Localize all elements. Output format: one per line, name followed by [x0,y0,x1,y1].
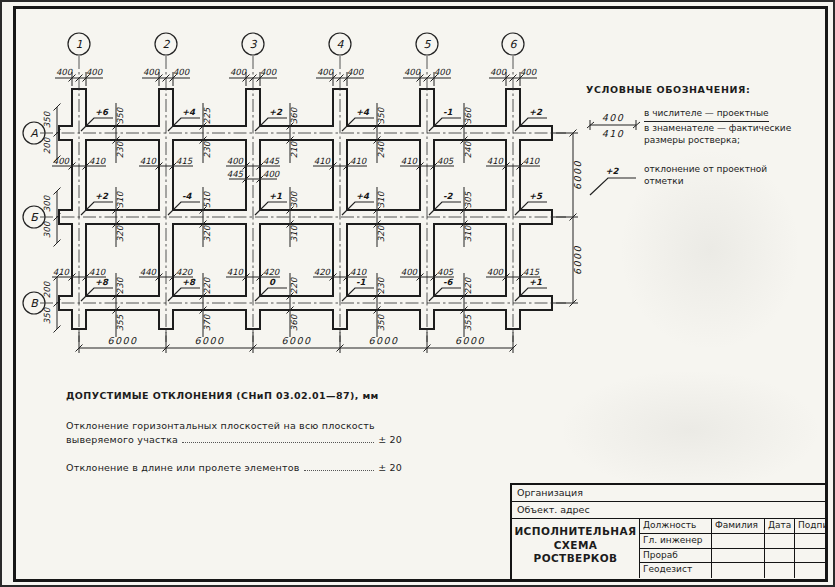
svg-text:В: В [30,297,39,310]
svg-text:-4: -4 [182,191,193,201]
svg-text:440: 440 [140,267,158,277]
svg-text:4: 4 [337,38,345,51]
svg-text:+6: +6 [95,107,109,117]
svg-text:400: 400 [173,67,191,77]
svg-text:-6: -6 [443,277,454,287]
grillage-beams [58,88,553,330]
svg-text:+8: +8 [182,277,196,287]
svg-text:415: 415 [176,156,193,166]
svg-text:+1: +1 [529,277,542,287]
svg-text:6000: 6000 [572,160,583,190]
svg-text:220: 220 [289,276,299,294]
svg-text:6000: 6000 [107,335,137,346]
title-block: Организация Объект. адрес ИСПОЛНИТЕЛЬНАЯ… [510,483,827,581]
note-item: Отклонение в длине или пролете элементов… [66,461,402,475]
svg-text:230: 230 [202,140,212,158]
note-line2: выверяемого участка [66,433,178,447]
svg-text:225: 225 [202,107,212,124]
row-surveyor: Геодезист [640,563,712,578]
organization-row: Организация [512,485,825,502]
svg-text:350: 350 [42,110,52,128]
note-value: ± 20 [378,433,402,447]
svg-text:355: 355 [115,314,125,331]
svg-text:0: 0 [269,277,276,287]
size-fraction-symbol: 400 410 [586,108,644,146]
svg-text:400: 400 [520,67,538,77]
svg-text:5: 5 [424,38,432,51]
bottom-dimensions: 60006000600060006000 [76,332,517,353]
svg-text:-2: -2 [443,191,454,201]
svg-text:-1: -1 [356,277,366,287]
note-item: Отклонение горизонтальных плоскостей на … [66,419,402,447]
row-chief-engineer: Гл. инженер [640,534,712,549]
svg-text:410: 410 [401,156,419,166]
svg-text:300: 300 [289,190,299,208]
deviation-leader-symbol: +2 [586,164,644,202]
svg-text:310: 310 [289,224,299,242]
svg-text:320: 320 [202,224,212,242]
drawing-sheet: 123456АБВ4004004004004004004004004004004… [0,0,835,587]
svg-text:+2: +2 [269,107,283,117]
svg-text:420: 420 [176,267,194,277]
svg-text:410: 410 [53,267,71,277]
svg-text:220: 220 [463,276,473,294]
svg-text:360: 360 [289,106,299,124]
legend-title: УСЛОВНЫЕ ОБОЗНАЧЕНИЯ: [586,84,831,96]
svg-text:355: 355 [463,314,473,331]
legend-deviation-line2: отметки [644,176,684,186]
note-value: ± 20 [378,461,402,475]
legend-size-line1: в числителе — проектные [644,108,769,122]
svg-text:400: 400 [143,67,161,77]
empty-cell [765,563,795,578]
legend-item-deviation: +2 отклонение от проектной отметки [586,164,831,202]
svg-text:400: 400 [227,156,245,166]
svg-text:400: 400 [487,267,505,277]
signature-table: Должность Фамилия Дата Подпись Гл. инжен… [639,519,825,578]
svg-text:220: 220 [202,276,212,294]
svg-text:400: 400 [230,67,248,77]
svg-text:-1: -1 [443,107,453,117]
allowable-deviations-notes: ДОПУСТИМЫЕ ОТКЛОНЕНИЯ (СНиП 03.02.01—87)… [66,390,402,488]
empty-cell [712,534,765,549]
empty-cell [795,534,825,549]
empty-cell [765,534,795,549]
legend-deviation-text: отклонение от проектной отметки [644,164,831,187]
svg-text:405: 405 [437,156,454,166]
legend-size-line3: размеры ростверка; [644,135,740,145]
svg-text:410: 410 [140,156,158,166]
dotted-leader [182,442,374,443]
legend: УСЛОВНЫЕ ОБОЗНАЧЕНИЯ: 400 410 в числител… [586,84,831,220]
note-line2: Отклонение в длине или пролете элементов [66,461,300,475]
svg-text:400: 400 [86,67,104,77]
right-dimensions: 60006000 [553,130,583,307]
svg-text:+4: +4 [356,107,370,117]
svg-text:415: 415 [523,267,540,277]
deviation-sample-value: +2 [605,166,619,176]
dotted-leader [304,470,375,471]
svg-text:+1: +1 [269,191,282,201]
svg-text:200: 200 [42,280,52,298]
empty-cell [795,563,825,578]
svg-text:+2: +2 [95,191,109,201]
svg-text:2: 2 [163,38,171,51]
svg-text:410: 410 [523,156,541,166]
svg-text:400: 400 [263,169,281,179]
col-header-name: Фамилия [712,519,765,534]
drawing-title: ИСПОЛНИТЕЛЬНАЯ СХЕМА РОСТВЕРКОВ [512,519,639,578]
svg-text:350: 350 [115,106,125,124]
svg-text:240: 240 [463,140,473,158]
svg-text:420: 420 [263,267,281,277]
svg-text:3: 3 [250,38,258,51]
svg-text:300: 300 [42,194,52,212]
svg-text:405: 405 [437,267,454,277]
legend-deviation-line1: отклонение от проектной [644,164,767,174]
svg-text:400: 400 [404,67,422,77]
svg-text:6000: 6000 [455,335,485,346]
svg-text:400: 400 [490,67,508,77]
svg-text:+5: +5 [529,191,543,201]
svg-text:410: 410 [314,156,332,166]
svg-text:445: 445 [227,169,244,179]
svg-text:+8: +8 [95,277,109,287]
svg-text:310: 310 [376,190,386,208]
svg-text:410: 410 [89,267,107,277]
svg-text:350: 350 [376,313,386,331]
svg-text:200: 200 [42,136,52,154]
svg-text:410: 410 [350,267,368,277]
svg-text:400: 400 [347,67,365,77]
svg-text:1: 1 [76,38,83,51]
svg-text:310: 310 [463,224,473,242]
legend-item-sizes: 400 410 в числителе — проектные в знамен… [586,108,831,146]
top-dimensions: 400400400400400400400400400400400400 [55,67,538,86]
svg-text:6000: 6000 [572,245,583,275]
svg-text:400: 400 [401,267,419,277]
svg-text:310: 310 [115,190,125,208]
empty-cell [712,563,765,578]
size-top-value: 400 [602,112,625,123]
svg-text:360: 360 [463,106,473,124]
empty-cell [765,549,795,564]
size-bottom-value: 410 [602,128,625,139]
svg-text:350: 350 [376,106,386,124]
note-line1: Отклонение горизонтальных плоскостей на … [66,419,402,433]
svg-text:410: 410 [350,156,368,166]
svg-text:400: 400 [56,67,74,77]
svg-text:410: 410 [89,156,107,166]
svg-text:445: 445 [263,156,280,166]
svg-text:6000: 6000 [194,335,224,346]
svg-text:210: 210 [289,140,299,158]
svg-text:6000: 6000 [281,335,311,346]
svg-text:510: 510 [202,190,212,208]
object-address-row: Объект. адрес [512,502,825,519]
svg-text:320: 320 [376,224,386,242]
empty-cell [712,549,765,564]
svg-text:350: 350 [42,306,52,324]
svg-text:А: А [30,127,38,140]
col-header-signature: Подпись [795,519,825,534]
svg-text:6: 6 [510,38,518,51]
leader-icon: +2 [586,164,640,198]
svg-text:6000: 6000 [368,335,398,346]
width-dimension-pairs: 4004104104154004454104104104054104104454… [52,156,541,183]
svg-text:400: 400 [434,67,452,77]
svg-text:300: 300 [42,220,52,238]
svg-text:+4: +4 [356,191,370,201]
svg-text:+2: +2 [529,107,543,117]
notes-title: ДОПУСТИМЫЕ ОТКЛОНЕНИЯ (СНиП 03.02.01—87)… [66,390,402,401]
legend-size-text: в числителе — проектные в знаменателе — … [644,108,831,146]
svg-text:410: 410 [487,156,505,166]
svg-text:400: 400 [317,67,335,77]
svg-text:240: 240 [376,140,386,158]
legend-size-line2: в знаменателе — фактические [644,123,791,133]
svg-text:230: 230 [115,276,125,294]
empty-cell [795,549,825,564]
svg-text:305: 305 [463,191,473,208]
row-foreman: Прораб [640,549,712,564]
svg-text:230: 230 [376,276,386,294]
col-header-position: Должность [640,519,712,534]
svg-text:370: 370 [202,313,212,331]
svg-text:360: 360 [289,313,299,331]
fraction-icon: 400 410 [586,108,640,142]
svg-text:420: 420 [314,267,332,277]
svg-text:230: 230 [115,140,125,158]
svg-text:410: 410 [227,267,245,277]
svg-text:+4: +4 [182,107,196,117]
svg-text:320: 320 [115,224,125,242]
svg-text:400: 400 [260,67,278,77]
svg-text:Б: Б [30,211,39,224]
col-header-date: Дата [765,519,795,534]
